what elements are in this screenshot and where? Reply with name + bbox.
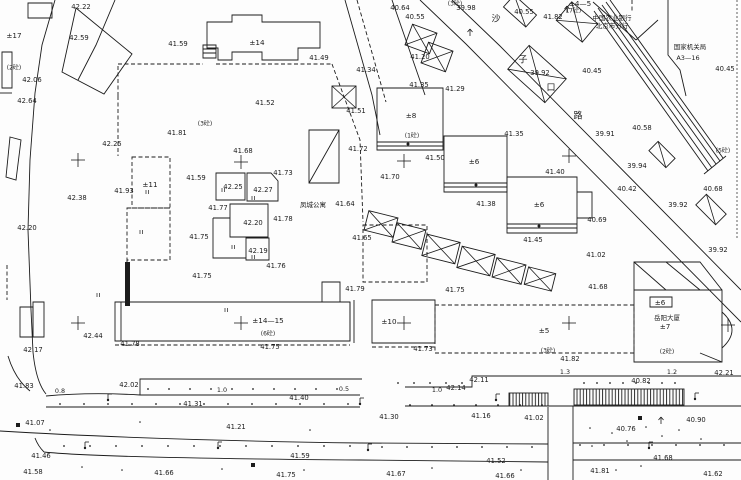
elevation-label: 41.73 [273, 169, 292, 177]
plan-line [46, 379, 362, 396]
elevation-label: 41.45 [523, 236, 542, 244]
elevation-label: 41.16 [471, 412, 490, 420]
elevation-label: 41.20 [410, 53, 429, 61]
pavement-dot [651, 444, 653, 446]
dimension-label: 0.8 [55, 387, 65, 395]
pavement-dot [299, 403, 301, 405]
elevation-label: 42.11 [469, 376, 488, 384]
plan-line [28, 3, 52, 18]
lamp-base [648, 447, 650, 449]
retaining-wall-hatch [509, 393, 548, 406]
lamp-base [107, 399, 109, 401]
elevation-label: 41.50 [425, 154, 444, 162]
survey-grid-cross [71, 316, 85, 330]
pavement-dot [273, 388, 275, 390]
hatched-structure [649, 141, 675, 167]
elevation-label: 40.90 [686, 416, 705, 424]
site-plan-drawing: 42.2242.5942.0642.6441.5940.6440.5539.98… [0, 0, 741, 480]
elevation-label: 41.75 [276, 471, 295, 479]
elevation-label: 41.65 [352, 234, 371, 242]
elevation-label: 41.93 [114, 187, 133, 195]
elevation-label: 39.94 [627, 162, 646, 170]
building-number-label: ±6 [469, 157, 480, 166]
material-note-label: (3砼) [448, 0, 463, 8]
entrance-dot [475, 184, 478, 187]
elevation-label: 42.25 [102, 140, 121, 148]
elevation-label: 41.35 [504, 130, 523, 138]
place-name-label: 岳阳大厦 [654, 313, 681, 322]
pavement-dot [315, 388, 317, 390]
elevation-label: 41.29 [445, 85, 464, 93]
elevation-label: 41.68 [588, 283, 607, 291]
elevation-label: 42.02 [119, 381, 138, 389]
hatched-structure [524, 267, 556, 291]
elevation-label: 40.58 [632, 124, 651, 132]
floor-tick [140, 230, 143, 234]
pavement-dot [347, 403, 349, 405]
dimension-label: 1.0 [217, 386, 227, 394]
elevation-label: 41.81 [167, 129, 186, 137]
pavement-dot [453, 404, 455, 406]
pavement-dot [252, 388, 254, 390]
building-number-label: ±14—15 [252, 316, 284, 325]
elevation-label: 41.82 [560, 355, 579, 363]
pavement-dot [700, 438, 702, 440]
elevation-label: 41.30 [379, 413, 398, 421]
elevation-label: 41.82 [543, 13, 562, 21]
elevation-label: 41.64 [335, 200, 354, 208]
plan-line [6, 137, 21, 180]
elevation-label: 41.68 [233, 147, 252, 155]
pavement-dot [497, 404, 499, 406]
pavement-dot [611, 432, 613, 434]
elevation-label: 41.78 [273, 215, 292, 223]
elevation-label: 41.83 [14, 382, 33, 390]
dimension-label: 1.2 [667, 368, 677, 376]
street-lamp-icon [359, 398, 364, 405]
elevation-label: 41.75 [192, 272, 211, 280]
pavement-dot [661, 382, 663, 384]
dimension-label: 1.0 [432, 386, 442, 394]
floor-tick [146, 190, 149, 194]
pavement-dot [431, 404, 433, 406]
elevation-label: 42.20 [243, 219, 262, 227]
plan-line [548, 406, 573, 480]
elevation-label: 41.58 [23, 468, 42, 476]
pavement-dot [520, 469, 522, 471]
pavement-dot [294, 388, 296, 390]
floor-tick [232, 245, 235, 249]
pavement-dot [678, 429, 680, 431]
pavement-dot [583, 382, 585, 384]
elevation-label: 42.44 [83, 332, 102, 340]
elevation-label: 41.38 [476, 200, 495, 208]
elevation-label: 41.59 [186, 174, 205, 182]
dimension-label: 1.3 [560, 368, 570, 376]
elevation-label: 42.14 [446, 384, 465, 392]
pavement-dot [609, 382, 611, 384]
elevation-label: 42.64 [17, 97, 36, 105]
lamp-base [217, 447, 219, 449]
pavement-dot [141, 445, 143, 447]
elevation-label: 41.02 [586, 251, 605, 259]
pavement-dot [397, 382, 399, 384]
street-lamp-icon [495, 394, 500, 401]
lamp-base [359, 403, 361, 405]
pavement-dot [429, 382, 431, 384]
street-name-char: 沙 [491, 14, 500, 25]
structure-diagonal [524, 267, 556, 291]
elevation-label: 41.40 [289, 394, 308, 402]
survey-grid-cross [397, 154, 411, 168]
plan-line [33, 352, 46, 394]
lamp-base [367, 449, 369, 451]
utility-marker [638, 416, 642, 420]
elevation-label: 42.59 [69, 34, 88, 42]
hatched-structure [696, 194, 726, 224]
elevation-label: 41.52 [486, 457, 505, 465]
street-name-char: 路 [573, 110, 582, 122]
pavement-dot [59, 403, 61, 405]
elevation-label: 41.75 [445, 286, 464, 294]
plan-line [634, 262, 732, 362]
utility-marker [251, 463, 255, 467]
elevation-label: 41.68 [653, 454, 672, 462]
plan-line [28, 0, 55, 352]
survey-grid-cross [397, 316, 411, 330]
pavement-dot [675, 444, 677, 446]
pavement-dot [139, 421, 141, 423]
place-name-label: 北京市分行 [596, 21, 629, 30]
plan-line [332, 64, 363, 222]
pavement-dot [622, 382, 624, 384]
pavement-dot [456, 446, 458, 448]
entrance-dot [407, 143, 410, 146]
material-note-label: (5砼) [716, 147, 731, 155]
plan-line [62, 8, 132, 94]
pavement-dot [591, 445, 593, 447]
elevation-label: 42.25 [223, 183, 242, 191]
material-note-label: (1砼) [405, 132, 420, 140]
plan-line [350, 300, 354, 343]
lamp-base [84, 447, 86, 449]
pavement-dot [661, 435, 663, 437]
pavement-dot [506, 446, 508, 448]
pavement-dot [245, 445, 247, 447]
elevation-label: 41.75 [189, 233, 208, 241]
place-name-label: 中国农业银行 [593, 13, 633, 22]
elevation-label: 41.76 [266, 262, 285, 270]
plan-line [127, 208, 170, 260]
pavement-dot [596, 382, 598, 384]
elevation-label: 41.73 [413, 345, 432, 353]
elevation-label: 39.92 [530, 69, 549, 77]
hatched-structure [492, 258, 526, 285]
pavement-dot [115, 445, 117, 447]
tree-icon [659, 417, 664, 424]
tree-icon [468, 29, 473, 36]
floor-tick [252, 255, 255, 259]
elevation-label: 40.45 [582, 67, 601, 75]
material-note-label: (3砼) [198, 120, 213, 128]
building-number-label: ±6 [655, 298, 666, 307]
pavement-dot [210, 388, 212, 390]
plan-line [435, 305, 634, 353]
elevation-label: 41.35 [409, 81, 428, 89]
building-number-label: ±7 [660, 322, 671, 331]
street-name-char: 子 [518, 55, 527, 66]
elevation-label: 41.02 [524, 414, 543, 422]
elevation-label: 42.21 [714, 369, 733, 377]
elevation-label: 40.45 [715, 65, 734, 73]
structure-diagonal [457, 246, 495, 276]
pavement-dot [193, 445, 195, 447]
pavement-dot [481, 446, 483, 448]
elevation-label: 41.59 [290, 452, 309, 460]
elevation-label: 42.19 [248, 247, 267, 255]
pavement-dot [303, 469, 305, 471]
annotation-layer: 42.2242.5942.0642.6441.5940.6440.5539.98… [6, 0, 734, 480]
pavement-dot [168, 388, 170, 390]
pavement-dot [640, 465, 642, 467]
plan-line [203, 45, 216, 58]
building-number-label: ±11 [142, 180, 157, 189]
pavement-dot [219, 445, 221, 447]
elevation-label: 41.66 [495, 472, 514, 480]
building-number-label: ±8 [406, 111, 417, 120]
elevation-label: 42.20 [17, 224, 36, 232]
elevation-label: 40.42 [617, 185, 636, 193]
plan-line [309, 130, 339, 183]
hatched-structure [392, 223, 426, 250]
pavement-dot [155, 403, 157, 405]
pavement-dot [89, 445, 91, 447]
survey-grid-cross [562, 149, 576, 163]
plan-line [46, 406, 741, 407]
elevation-label: 41.62 [703, 470, 722, 478]
elevation-label: 41.70 [380, 173, 399, 181]
pavement-dot [431, 446, 433, 448]
elevation-label: 42.27 [253, 186, 272, 194]
pavement-dot [83, 403, 85, 405]
plan-line [33, 302, 44, 337]
lamp-base [694, 398, 696, 400]
elevation-label: 40.55 [405, 13, 424, 21]
material-note-label: (2砼) [660, 348, 675, 356]
pavement-dot [349, 445, 351, 447]
pavement-dot [336, 388, 338, 390]
elevation-label: 41.77 [208, 204, 227, 212]
pavement-dot [406, 446, 408, 448]
elevation-label: 41.51 [346, 107, 365, 115]
street-name-char: 口 [546, 84, 555, 94]
pavement-dot [131, 403, 133, 405]
material-note-label: (7砼) [567, 7, 582, 15]
elevation-label: 40.69 [587, 216, 606, 224]
pavement-dot [81, 466, 83, 468]
site-plan-canvas: 42.2242.5942.0642.6441.5940.6440.5539.98… [0, 0, 741, 480]
plan-line [507, 177, 592, 233]
elevation-label: 42.22 [71, 3, 90, 11]
building-number-label: ±10 [381, 317, 397, 326]
pavement-dot [309, 429, 311, 431]
dimension-label: 0.5 [339, 385, 349, 393]
elevation-label: 41.59 [168, 40, 187, 48]
wall-bar [125, 262, 130, 306]
elevation-label: 42.17 [23, 346, 42, 354]
pavement-dot [615, 469, 617, 471]
structure-diagonal [392, 223, 426, 250]
survey-grid-cross [234, 316, 248, 330]
pavement-dot [275, 403, 277, 405]
pavement-dot [179, 403, 181, 405]
hatched-structure [332, 86, 356, 108]
street-lamp-icon [367, 444, 372, 451]
hatched-structure [457, 246, 495, 276]
pavement-dot [227, 403, 229, 405]
elevation-label: 41.46 [31, 452, 50, 460]
elevation-label: 41.81 [590, 467, 609, 475]
pavement-dot [626, 440, 628, 442]
street-lamp-icon [694, 393, 699, 400]
elevation-label: 39.92 [708, 246, 727, 254]
material-note-label: (6砼) [261, 330, 276, 338]
street-lamp-icon [107, 394, 112, 401]
entrance-dot [538, 225, 541, 228]
pavement-dot [297, 445, 299, 447]
pavement-dot [323, 445, 325, 447]
pavement-dot [221, 468, 223, 470]
pavement-dot [531, 446, 533, 448]
material-note-label: (2砼) [7, 64, 22, 72]
pavement-dot [49, 429, 51, 431]
pavement-dot [189, 388, 191, 390]
floor-tick [97, 293, 100, 297]
elevation-label: 41.75 [260, 343, 279, 351]
pavement-dot [409, 404, 411, 406]
pavement-dot [475, 404, 477, 406]
building-number-label: ±5 [539, 326, 550, 335]
elevation-label: 40.64 [390, 4, 409, 12]
elevation-label: 41.34 [356, 66, 375, 74]
pavement-dot [579, 444, 581, 446]
elevation-label: 41.49 [309, 54, 328, 62]
lamp-base [495, 399, 497, 401]
elevation-label: 39.91 [595, 130, 614, 138]
elevation-label: 41.31 [183, 400, 202, 408]
elevation-label: 41.21 [226, 423, 245, 431]
elevation-label: 41.67 [386, 470, 405, 478]
hatched-structure [422, 234, 460, 264]
pavement-dot [603, 444, 605, 446]
pavement-dot [167, 445, 169, 447]
structure-diagonal [422, 234, 460, 264]
pavement-dot [63, 445, 65, 447]
place-name-label: 凤城公寓 [300, 200, 326, 209]
plan-line [363, 225, 427, 282]
pavement-dot [674, 382, 676, 384]
plan-line [213, 218, 246, 258]
material-note-label: (3砼) [541, 347, 556, 355]
plan-line [118, 64, 332, 96]
building-number-label: ±14 [249, 38, 265, 47]
pavement-dot [121, 469, 123, 471]
pavement-dot [323, 403, 325, 405]
elevation-label: 41.66 [154, 469, 173, 477]
pavement-dot [203, 403, 205, 405]
pavement-dot [231, 388, 233, 390]
survey-grid-cross [721, 318, 735, 332]
survey-grid-cross [562, 316, 576, 330]
pavement-dot [107, 403, 109, 405]
elevation-label: 41.79 [345, 285, 364, 293]
elevation-label: 42.38 [67, 194, 86, 202]
place-name-label: 国家机关局 [674, 42, 707, 51]
elevation-label: 39.92 [668, 201, 687, 209]
pavement-dot [147, 388, 149, 390]
pavement-dot [271, 445, 273, 447]
pavement-dot [381, 446, 383, 448]
elevation-label: 40.82 [631, 377, 650, 385]
street-lamp-icon [84, 442, 89, 449]
elevation-label: 42.06 [22, 76, 41, 84]
pavement-dot [627, 444, 629, 446]
pavement-dot [699, 444, 701, 446]
elevation-label: 41.72 [348, 145, 367, 153]
survey-grid-cross [71, 153, 85, 167]
pavement-dot [251, 403, 253, 405]
plan-line [35, 438, 741, 462]
place-name-label: A3—16 [676, 54, 699, 62]
pavement-dot [541, 404, 543, 406]
plan-line [115, 282, 350, 341]
floor-tick [225, 308, 228, 312]
floor-tick [252, 196, 255, 200]
elevation-label: 40.55 [514, 8, 533, 16]
pavement-dot [519, 404, 521, 406]
retaining-wall-hatch [574, 389, 684, 405]
pavement-dot [723, 444, 725, 446]
elevation-label: 41.78 [120, 340, 139, 348]
pavement-dot [645, 426, 647, 428]
structure-diagonal [492, 258, 526, 285]
building-number-label: ±17 [6, 31, 21, 40]
elevation-label: 41.07 [25, 419, 44, 427]
utility-marker [16, 423, 20, 427]
plan-line [357, 0, 386, 102]
elevation-label: 40.76 [616, 425, 635, 433]
pavement-dot [413, 382, 415, 384]
survey-grid-cross [234, 155, 248, 169]
building-number-label: ±6 [534, 200, 545, 209]
elevation-label: 41.52 [255, 99, 274, 107]
pavement-dot [589, 427, 591, 429]
pavement-dot [431, 467, 433, 469]
elevation-label: 40.68 [703, 185, 722, 193]
elevation-label: 41.40 [545, 168, 564, 176]
